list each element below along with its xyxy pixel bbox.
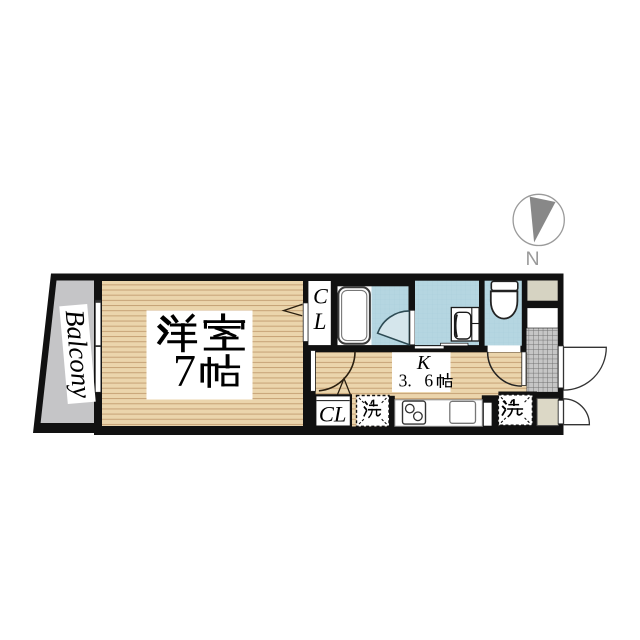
- svg-text:3.: 3.: [399, 371, 412, 391]
- svg-text:CL: CL: [319, 401, 347, 426]
- svg-text:6: 6: [424, 371, 433, 391]
- svg-text:C: C: [313, 284, 328, 309]
- svg-text:7: 7: [173, 345, 196, 396]
- svg-text:L: L: [313, 309, 327, 334]
- svg-text:N: N: [526, 248, 540, 270]
